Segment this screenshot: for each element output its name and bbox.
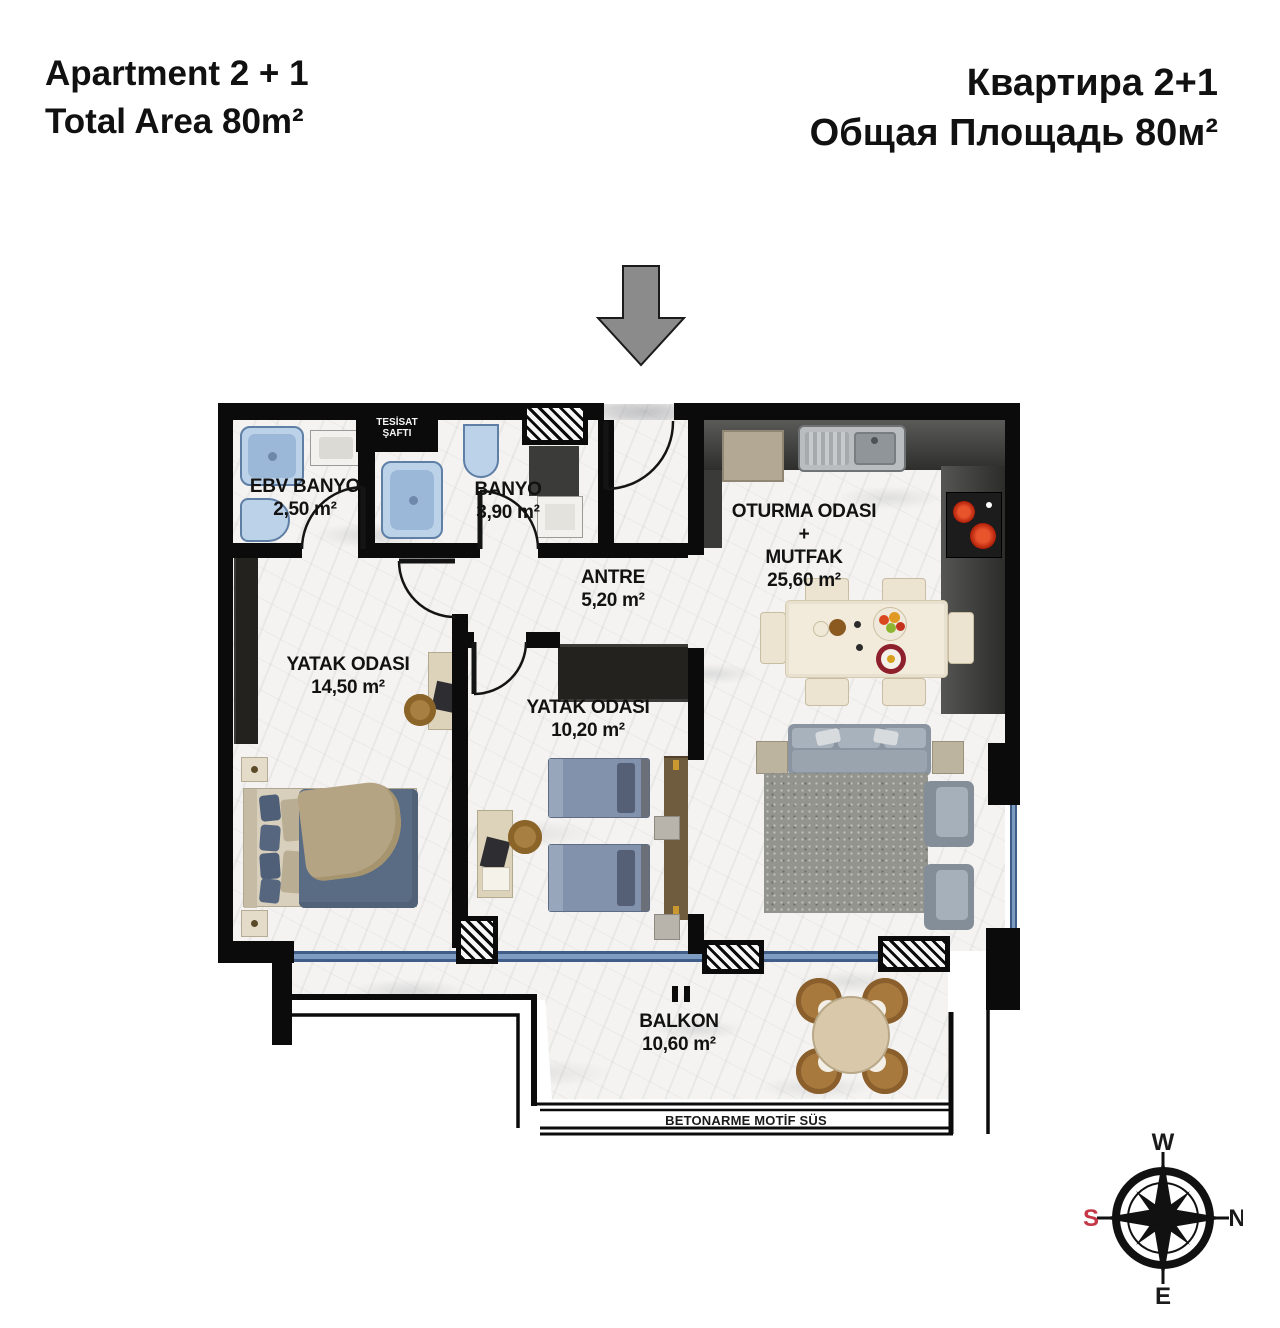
- shaft-line1: TESİSAT: [358, 417, 436, 428]
- wall-right-upper: [1005, 403, 1020, 743]
- room-area: 3,90 m²: [448, 501, 568, 524]
- pillar-hatch-3: [878, 936, 950, 972]
- nightstand: [241, 757, 268, 782]
- toilet-icon: [463, 424, 499, 478]
- room-name: YATAK ODASI: [523, 696, 653, 719]
- nightstand: [654, 914, 680, 940]
- room-label-bedroom2: YATAK ODASI 10,20 m²: [523, 696, 653, 742]
- wall-h2-b: [526, 632, 560, 648]
- window-band-south: [290, 951, 948, 962]
- fridge-icon: [722, 430, 784, 482]
- side-table: [756, 741, 788, 774]
- compass-label-south: S: [1083, 1205, 1099, 1232]
- plate-icon: [813, 621, 829, 637]
- red-plate-icon: [876, 644, 906, 674]
- title-ru-line2: Общая Площадь 80м²: [615, 108, 1218, 158]
- wall-right-corner: [986, 928, 1020, 1010]
- compass-star-cardinal: [1101, 1156, 1225, 1280]
- entrance-threshold: [602, 404, 674, 420]
- stove-icon: [946, 492, 1002, 558]
- wall-h1-b: [363, 543, 480, 558]
- room-area: 5,20 m²: [553, 589, 673, 612]
- room-area: 2,50 m²: [240, 498, 370, 521]
- room-name: BANYO: [448, 478, 568, 501]
- desk-chair: [508, 820, 542, 854]
- room-area: 25,60 m²: [724, 569, 884, 592]
- nightstand: [241, 910, 268, 937]
- room-label-antre: ANTRE 5,20 m²: [553, 566, 673, 612]
- pillar-hatch-1: [456, 916, 498, 964]
- wall-right-pillar: [988, 743, 1020, 805]
- compass-label-east: E: [1155, 1283, 1171, 1308]
- title-russian: Квартира 2+1 Общая Площадь 80м²: [615, 58, 1218, 158]
- table-decor-dot: [854, 621, 861, 628]
- compass-label-west: W: [1152, 1129, 1175, 1156]
- bed-single-icon: [548, 758, 650, 818]
- sink-icon: [310, 430, 362, 466]
- wall-h2-a: [452, 632, 474, 648]
- room-label-ebv-banyo: EBV BANYO 2,50 m²: [240, 475, 370, 521]
- room-name: ANTRE: [553, 566, 673, 589]
- wall-v2: [598, 420, 614, 558]
- room-area: 10,20 m²: [523, 719, 653, 742]
- bowl-icon: [829, 619, 846, 636]
- title-en-line2: Total Area 80m²: [45, 98, 309, 146]
- bed-single-icon: [548, 844, 650, 912]
- title-en-line1: Apartment 2 + 1: [45, 50, 309, 98]
- shower-icon: [381, 461, 443, 539]
- room-label-living: OTURMA ODASI + MUTFAK 25,60 m²: [724, 500, 884, 592]
- armchair-icon: [924, 864, 974, 930]
- room-name: MUTFAK: [724, 546, 884, 569]
- sofa-icon: [788, 724, 931, 776]
- fruit-platter-icon: [873, 607, 907, 641]
- room-area: 10,60 m²: [614, 1033, 744, 1056]
- kitchen-cabinet-strip: [704, 470, 722, 548]
- armchair-icon: [924, 781, 974, 847]
- wall-corner-bottom-left: [218, 941, 294, 963]
- nightstand: [654, 816, 680, 840]
- wall-v6: [452, 614, 468, 948]
- room-label-banyo: BANYO 3,90 m²: [448, 478, 568, 524]
- title-english: Apartment 2 + 1 Total Area 80m²: [45, 50, 309, 146]
- wall-v3: [688, 420, 704, 555]
- floorplan-page: Apartment 2 + 1 Total Area 80m² Квартира…: [0, 0, 1280, 1328]
- room-area: 14,50 m²: [283, 676, 413, 699]
- balcony-door-mark: [684, 986, 690, 1002]
- rug: [764, 773, 928, 913]
- balcony-left-pier: [272, 963, 292, 1045]
- compass-label-north: N: [1228, 1205, 1243, 1232]
- desk: [477, 810, 513, 898]
- shaft-label: TESİSAT ŞAFTI: [358, 417, 436, 439]
- wall-top-right: [674, 403, 1020, 420]
- shaft-hatch-top: [522, 403, 588, 445]
- closet-dark: [558, 644, 688, 702]
- dining-chair: [948, 612, 974, 664]
- dining-table: [785, 600, 948, 678]
- side-table: [932, 741, 964, 774]
- kitchen-sink-icon: [798, 425, 906, 472]
- room-name: OTURMA ODASI +: [724, 500, 884, 546]
- room-label-bedroom1: YATAK ODASI 14,50 m²: [283, 653, 413, 699]
- room-label-balcony: BALKON 10,60 m²: [614, 1010, 744, 1056]
- dining-chair: [882, 678, 926, 706]
- wall-left: [218, 403, 233, 963]
- table-decor-dot: [856, 644, 863, 651]
- wall-v4: [688, 648, 704, 760]
- balcony-table: [812, 996, 890, 1074]
- balcony-door-mark: [672, 986, 678, 1002]
- facade-note: BETONARME MOTİF SÜS: [536, 1113, 956, 1128]
- bed-double-icon: [243, 788, 417, 907]
- room-name: EBV BANYO: [240, 475, 370, 498]
- dining-chair: [760, 612, 786, 664]
- shaft-line2: ŞAFTI: [358, 428, 436, 439]
- compass-rose-icon: W N E S: [1083, 1128, 1243, 1308]
- dining-chair: [805, 678, 849, 706]
- room-name: BALKON: [614, 1010, 744, 1033]
- pillar-hatch-2: [702, 940, 764, 974]
- wall-h1-a: [233, 543, 302, 558]
- wardrobe-dark: [234, 558, 258, 744]
- wall-top-mid: [588, 403, 604, 420]
- title-ru-line1: Квартира 2+1: [615, 58, 1218, 108]
- entrance-arrow-icon: [598, 266, 684, 365]
- room-name: YATAK ODASI: [283, 653, 413, 676]
